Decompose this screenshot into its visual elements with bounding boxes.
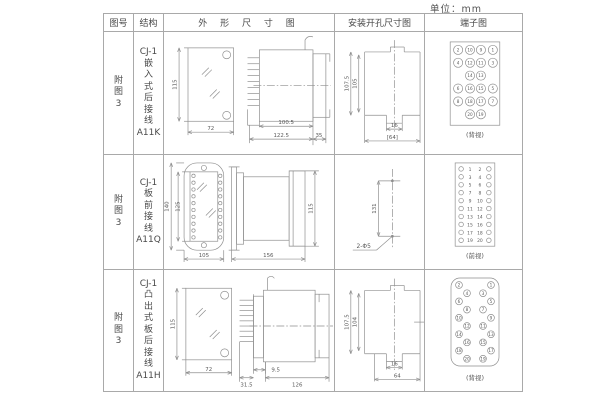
col-header-terminal: 端子图 (425, 14, 522, 32)
svg-text:107.5: 107.5 (344, 76, 350, 92)
svg-text:105: 105 (352, 78, 358, 88)
svg-text:64: 64 (394, 373, 401, 379)
svg-text:2: 2 (479, 167, 482, 173)
svg-text:3: 3 (469, 175, 472, 181)
svg-text:12: 12 (477, 207, 483, 213)
svg-text:(前视): (前视) (466, 251, 484, 260)
svg-text:4: 4 (457, 60, 460, 65)
svg-text:156: 156 (263, 253, 274, 259)
svg-text:19: 19 (467, 238, 473, 244)
svg-text:20: 20 (477, 238, 483, 244)
row3-outline-drawing: 115729.531.5126 (164, 270, 335, 391)
row1-structure: CJ-1 嵌 入 式 后 接 线 A11K (134, 32, 164, 155)
svg-text:100.5: 100.5 (278, 120, 294, 126)
svg-text:3: 3 (482, 291, 485, 296)
row2-structure: CJ-1 板 前 接 线 A11Q (134, 155, 164, 270)
svg-text:17: 17 (467, 230, 473, 236)
svg-text:13: 13 (478, 73, 484, 78)
svg-text:1: 1 (492, 47, 495, 52)
svg-text:9: 9 (480, 47, 483, 52)
svg-text:18: 18 (456, 348, 462, 353)
svg-text:10: 10 (467, 47, 473, 52)
svg-text:20: 20 (467, 112, 473, 117)
svg-text:7: 7 (482, 307, 485, 312)
svg-text:140: 140 (165, 201, 171, 212)
svg-text:16: 16 (464, 340, 470, 345)
svg-text:1: 1 (469, 167, 472, 173)
svg-text:7: 7 (469, 191, 472, 197)
row2-outline-drawing: 140125105156115 (164, 155, 335, 270)
svg-text:18: 18 (467, 99, 473, 104)
svg-text:9: 9 (469, 199, 472, 205)
svg-text:10: 10 (477, 199, 483, 205)
svg-text:5: 5 (469, 183, 472, 189)
svg-text:4: 4 (479, 175, 482, 181)
svg-text:17: 17 (488, 348, 494, 353)
svg-text:11: 11 (480, 324, 486, 329)
row1-terminal-drawing: 2109141211314136161558181772019(背视) (425, 32, 522, 155)
svg-text:4: 4 (466, 291, 469, 296)
svg-text:5: 5 (492, 86, 495, 91)
svg-text:105: 105 (199, 253, 209, 259)
svg-text:2: 2 (458, 283, 461, 288)
col-header-fig-no: 图号 (104, 14, 134, 32)
svg-text:35: 35 (315, 133, 322, 139)
svg-text:17: 17 (478, 99, 484, 104)
col-header-structure: 结构 (134, 14, 164, 32)
svg-text:13: 13 (488, 332, 494, 337)
svg-text:6: 6 (457, 86, 460, 91)
row3-fig-no: 附 图 3 (104, 270, 134, 391)
svg-text:14: 14 (456, 332, 462, 337)
svg-text:126: 126 (292, 383, 303, 389)
row3-terminal-drawing: 2143658710912111413161518172019(背视) (425, 270, 522, 391)
svg-text:13: 13 (467, 214, 473, 220)
row1-install-drawing: 107.510516[64] (335, 32, 425, 155)
spec-table: 图号 结构 外 形 尺 寸 图 安装开孔尺寸图 端子图 附 图 3 CJ-1 嵌… (103, 13, 523, 392)
svg-text:122.5: 122.5 (273, 133, 289, 139)
svg-text:16: 16 (391, 362, 398, 368)
svg-text:104: 104 (352, 316, 358, 327)
svg-text:131: 131 (372, 203, 378, 213)
svg-text:125: 125 (176, 201, 182, 211)
svg-text:16: 16 (391, 123, 398, 129)
svg-text:6: 6 (458, 299, 461, 304)
row3-install-drawing: 107.51041664 (335, 270, 425, 391)
svg-text:18: 18 (477, 230, 483, 236)
svg-text:8: 8 (479, 191, 482, 197)
col-header-outline: 外 形 尺 寸 图 (164, 14, 335, 32)
svg-text:19: 19 (478, 112, 484, 117)
svg-text:31.5: 31.5 (240, 383, 252, 389)
svg-text:11: 11 (467, 207, 473, 213)
svg-text:15: 15 (480, 340, 486, 345)
svg-text:14: 14 (467, 73, 473, 78)
svg-text:72: 72 (205, 367, 212, 373)
svg-text:2: 2 (457, 47, 460, 52)
row3-structure: CJ-1 凸 出 式 板 后 接 线 A11H (134, 270, 164, 391)
svg-text:9.5: 9.5 (271, 368, 280, 374)
svg-text:19: 19 (480, 356, 486, 361)
row2-install-drawing: 1312-Φ5 (335, 155, 425, 270)
svg-text:14: 14 (477, 214, 483, 220)
svg-text:7: 7 (492, 99, 495, 104)
svg-text:(背视): (背视) (466, 373, 484, 382)
svg-text:115: 115 (173, 79, 179, 89)
svg-text:6: 6 (479, 183, 482, 189)
svg-text:12: 12 (464, 324, 470, 329)
svg-text:115: 115 (170, 319, 176, 329)
svg-text:15: 15 (478, 86, 484, 91)
svg-text:10: 10 (456, 315, 462, 320)
svg-text:1: 1 (490, 283, 493, 288)
svg-text:(背视): (背视) (466, 130, 484, 139)
svg-text:20: 20 (464, 356, 470, 361)
row1-outline-drawing: 11572100.5122.535 (164, 32, 335, 155)
svg-text:15: 15 (467, 222, 473, 228)
svg-text:11: 11 (478, 60, 484, 65)
row2-terminal-drawing: 1234567891011121314151617181920(前视) (425, 155, 522, 270)
row1-fig-no: 附 图 3 (104, 32, 134, 155)
svg-text:107.5: 107.5 (344, 314, 350, 330)
svg-text:3: 3 (492, 60, 495, 65)
svg-text:72: 72 (207, 126, 214, 132)
col-header-install: 安装开孔尺寸图 (335, 14, 425, 32)
svg-text:5: 5 (490, 299, 493, 304)
svg-text:8: 8 (457, 99, 460, 104)
svg-text:9: 9 (490, 315, 493, 320)
row2-fig-no: 附 图 3 (104, 155, 134, 270)
svg-text:16: 16 (477, 222, 483, 228)
svg-text:8: 8 (466, 307, 469, 312)
svg-text:16: 16 (467, 86, 473, 91)
svg-text:[64]: [64] (387, 135, 398, 141)
svg-text:12: 12 (467, 60, 473, 65)
svg-text:115: 115 (308, 203, 314, 213)
svg-text:2-Φ5: 2-Φ5 (357, 243, 372, 250)
